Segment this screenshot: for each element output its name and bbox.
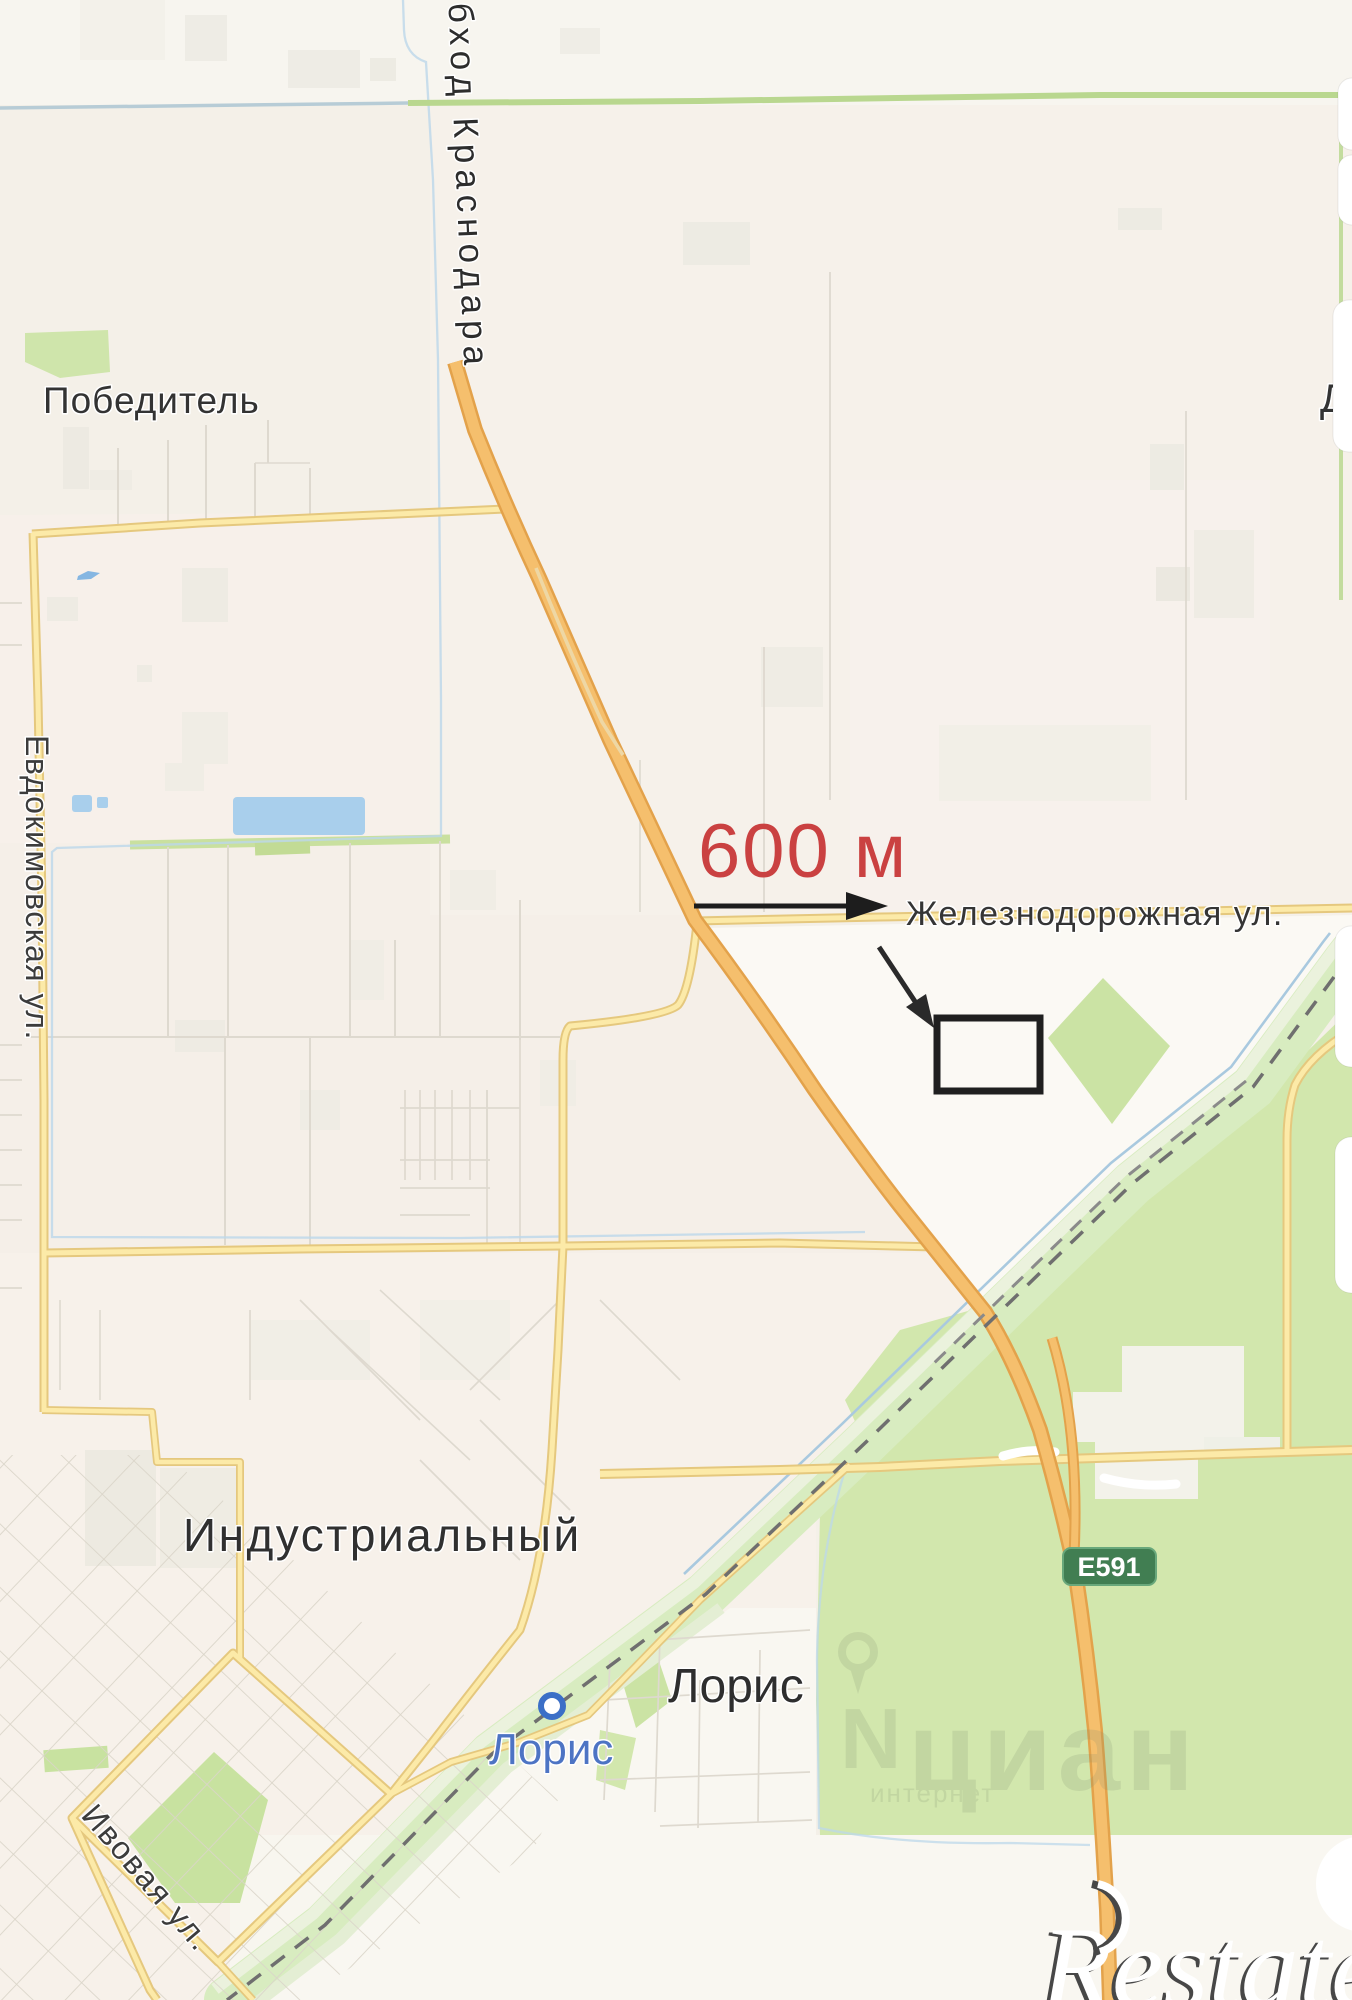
svg-text:Индустриальный: Индустриальный <box>183 1509 582 1561</box>
svg-text:Евдокимовская ул.: Евдокимовская ул. <box>19 735 55 1041</box>
svg-text:Restate: Restate <box>1040 1904 1352 2000</box>
svg-text:интернет: интернет <box>870 1778 995 1808</box>
svg-text:N: N <box>840 1692 901 1787</box>
svg-text:Лорис: Лорис <box>668 1660 804 1713</box>
svg-text:E591: E591 <box>1077 1552 1140 1582</box>
svg-text:Железнодорожная ул.: Железнодорожная ул. <box>906 895 1284 933</box>
svg-text:Победитель: Победитель <box>43 380 260 421</box>
svg-text:600 м: 600 м <box>698 809 908 894</box>
svg-text:Лорис: Лорис <box>489 1725 613 1774</box>
